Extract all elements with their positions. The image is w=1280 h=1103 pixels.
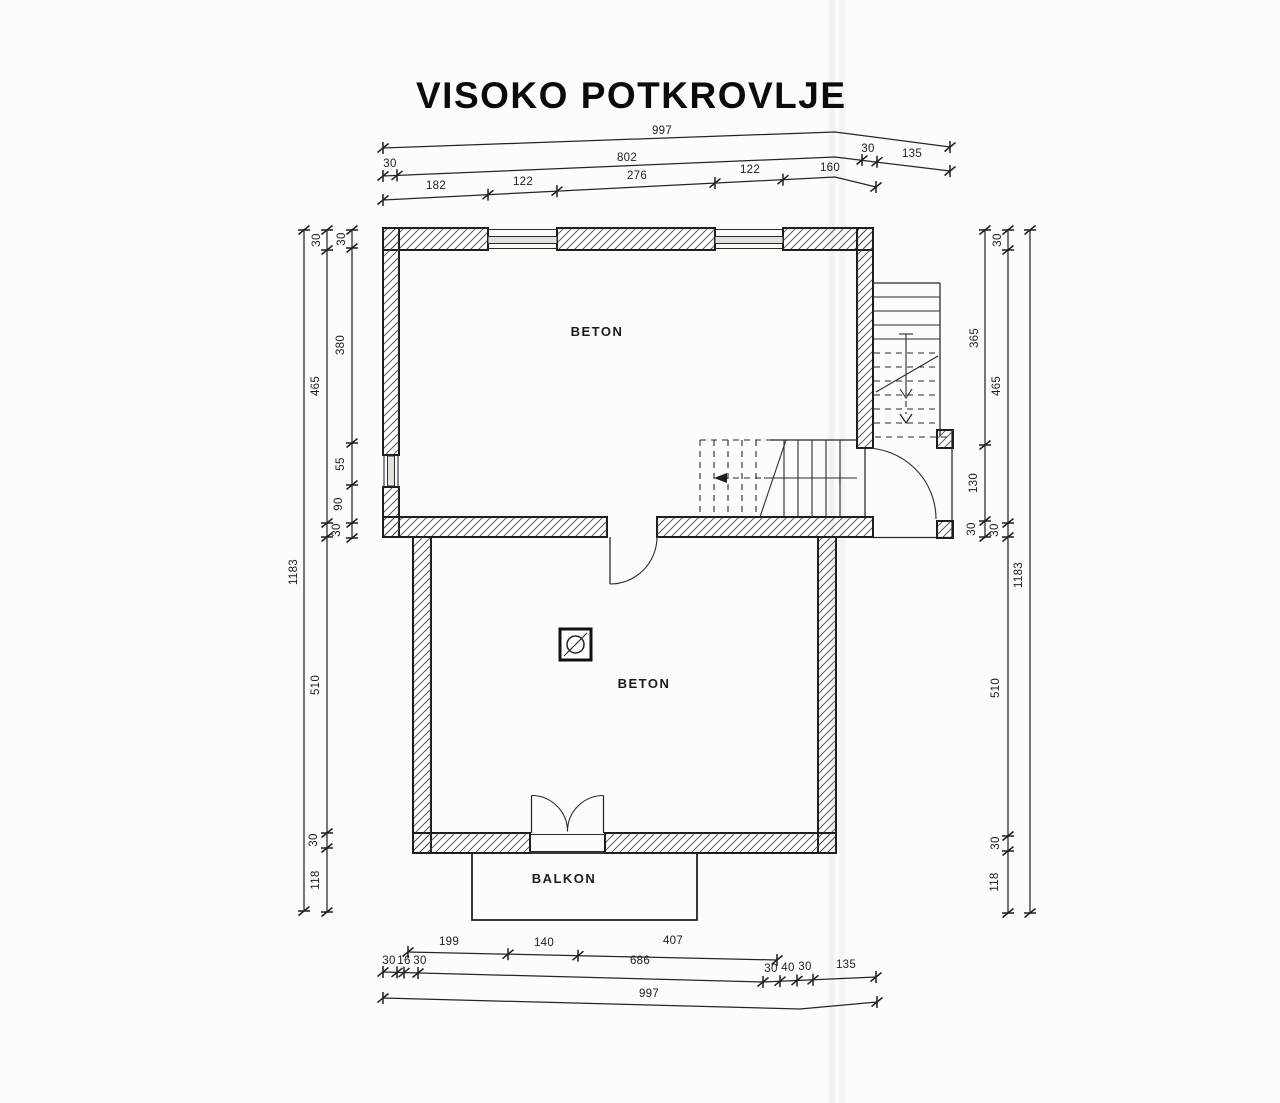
landing-post <box>937 430 953 448</box>
dim-label: 30 <box>382 955 395 967</box>
dim-label: 997 <box>639 988 659 1000</box>
landing-post <box>937 521 953 538</box>
dim-label: 510 <box>310 675 322 695</box>
dim-label: 135 <box>836 959 856 971</box>
dim-label: 1183 <box>1013 562 1025 588</box>
walkline-arrow-down <box>900 414 912 423</box>
dim-label: 30 <box>308 833 320 846</box>
dim-label: 160 <box>820 162 840 174</box>
dim-label: 40 <box>781 962 794 974</box>
dim-label: 16 <box>397 955 410 967</box>
dim-label: 407 <box>663 935 683 947</box>
dim-label: 276 <box>627 170 647 182</box>
interior-door <box>610 537 657 584</box>
flue-symbol <box>560 629 591 660</box>
dimensions-right: 365 130 30 30 465 30 510 30 118 1183 <box>966 226 1036 918</box>
dim-label: 30 <box>764 963 777 975</box>
dim-label: 30 <box>331 523 343 536</box>
walkline-arrow <box>714 473 727 483</box>
dim-label: 802 <box>617 152 637 164</box>
dim-label: 122 <box>513 176 533 188</box>
balcony: BALKON <box>472 853 697 920</box>
dim-label: 55 <box>335 457 347 470</box>
dim-label: 90 <box>333 497 345 510</box>
upper-room-label: BETON <box>571 324 624 339</box>
dim-label: 122 <box>740 164 760 176</box>
dim-label: 140 <box>534 937 554 949</box>
dim-label: 135 <box>902 148 922 160</box>
dim-label: 30 <box>798 961 811 973</box>
dim-label: 1183 <box>288 559 300 585</box>
floor-plan-drawing: VISOKO POTKROVLJE <box>0 0 1280 1103</box>
balcony-label: BALKON <box>532 871 597 886</box>
dim-label: 365 <box>969 328 981 348</box>
dim-label: 118 <box>989 872 1001 891</box>
dim-label: 130 <box>968 473 980 493</box>
lower-room-label: BETON <box>618 676 671 691</box>
balcony-double-door <box>530 796 605 852</box>
dim-label: 465 <box>991 376 1003 396</box>
dimensions-bottom: 199 140 407 30 16 30 686 30 40 30 135 99… <box>378 935 883 1009</box>
drawing-title: VISOKO POTKROVLJE <box>416 75 847 116</box>
dim-label: 30 <box>966 522 978 535</box>
window-top-1 <box>488 230 557 249</box>
dim-label: 118 <box>310 870 322 889</box>
dim-label: 30 <box>413 955 426 967</box>
landing-door <box>865 448 936 519</box>
dim-label: 30 <box>311 233 323 246</box>
dim-label: 30 <box>990 836 1002 849</box>
dim-label: 30 <box>336 232 348 245</box>
dim-label: 510 <box>990 678 1002 698</box>
dim-label: 182 <box>426 180 446 192</box>
dim-label: 686 <box>630 955 650 967</box>
dim-label: 997 <box>652 125 672 137</box>
scanned-floor-plan-page: VISOKO POTKROVLJE <box>0 0 1280 1103</box>
dim-label: 30 <box>989 523 1001 536</box>
window-top-2 <box>715 230 783 249</box>
dimensions-top: 997 30 802 30 135 182 122 276 122 160 <box>378 125 956 206</box>
dimensions-left: 1183 30 465 510 30 118 30 380 55 90 30 <box>288 226 358 917</box>
stair-horizontal-flight <box>700 440 857 517</box>
dim-label: 380 <box>335 335 347 355</box>
dim-label: 199 <box>439 936 459 948</box>
stair-landing <box>873 430 953 538</box>
dim-label: 30 <box>861 143 874 155</box>
lower-room-walls <box>413 537 836 853</box>
dim-label: 30 <box>992 233 1004 246</box>
dim-label: 465 <box>310 376 322 396</box>
upper-room-walls <box>383 228 873 537</box>
window-left <box>384 455 398 487</box>
dim-label: 30 <box>383 158 396 170</box>
stair-vertical-flight <box>873 283 940 437</box>
